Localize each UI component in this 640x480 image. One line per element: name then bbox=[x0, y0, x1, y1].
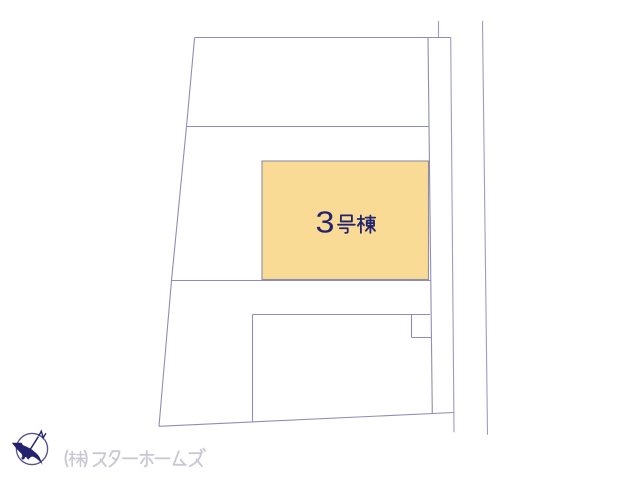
svg-text:3: 3 bbox=[316, 205, 335, 239]
